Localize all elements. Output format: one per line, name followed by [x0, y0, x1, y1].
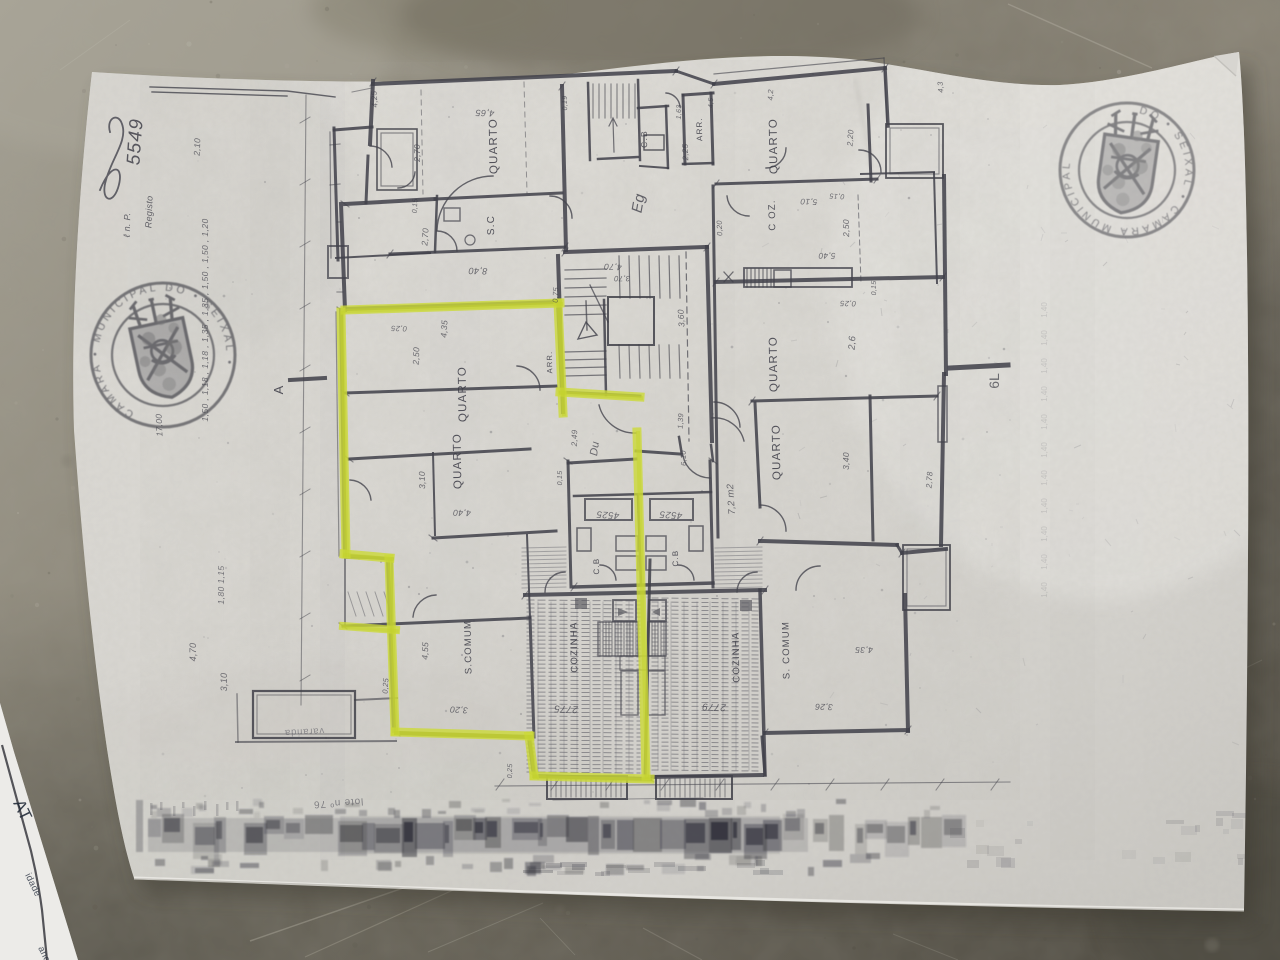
svg-text:ARR.: ARR. — [545, 351, 554, 374]
svg-text:4,40: 4,40 — [453, 508, 471, 518]
svg-text:4,35: 4,35 — [439, 320, 450, 338]
svg-text:ARR.: ARR. — [695, 117, 704, 141]
svg-text:S.COMUM: S.COMUM — [463, 620, 475, 675]
svg-text:Du: Du — [588, 440, 602, 456]
svg-text:1,40: 1,40 — [1040, 554, 1049, 570]
svg-text:0,25: 0,25 — [390, 324, 407, 334]
svg-text:COZINHA: COZINHA — [569, 621, 581, 672]
svg-text:8,40: 8,40 — [468, 266, 488, 277]
svg-text:4,70: 4,70 — [604, 262, 623, 273]
svg-text:4,65: 4,65 — [475, 108, 495, 119]
svg-text:3,70: 3,70 — [613, 274, 630, 283]
svg-text:S.C: S.C — [486, 215, 497, 235]
svg-text:4525: 4525 — [596, 508, 620, 521]
svg-text:2,49: 2,49 — [570, 429, 579, 447]
svg-text:QUARTO: QUARTO — [452, 433, 465, 489]
svg-text:C.B: C.B — [592, 557, 601, 574]
svg-text:QUARTO: QUARTO — [771, 424, 784, 480]
svg-text:4,2: 4,2 — [766, 88, 776, 100]
svg-text:4,3: 4,3 — [936, 81, 946, 93]
svg-text:C OZ.: C OZ. — [767, 199, 779, 231]
svg-text:QUARTO: QUARTO — [488, 118, 501, 174]
svg-text:2,78: 2,78 — [924, 471, 934, 490]
svg-text:1,63: 1,63 — [676, 104, 683, 119]
svg-text:1,40: 1,40 — [1040, 470, 1049, 486]
svg-text:2779: 2779 — [702, 701, 728, 713]
svg-text:1,39: 1,39 — [676, 412, 685, 429]
svg-text:0,20: 0,20 — [715, 220, 724, 237]
svg-text:0,15: 0,15 — [412, 198, 420, 213]
svg-text:1,40: 1,40 — [1040, 330, 1049, 346]
svg-text:A: A — [271, 385, 286, 394]
svg-text:1,40: 1,40 — [1040, 386, 1049, 402]
svg-text:Eɡ: Eɡ — [629, 192, 649, 214]
svg-text:4525: 4525 — [659, 508, 683, 521]
svg-text:0,15: 0,15 — [828, 191, 844, 201]
svg-text:0,25: 0,25 — [839, 299, 856, 308]
svg-text:7,2 m2: 7,2 m2 — [725, 483, 738, 515]
svg-text:0,15: 0,15 — [557, 471, 564, 486]
svg-text:1,40: 1,40 — [1040, 358, 1049, 374]
svg-text:0,15: 0,15 — [871, 281, 878, 296]
svg-text:2,25: 2,25 — [681, 143, 691, 161]
svg-text:1,40: 1,40 — [1040, 414, 1049, 430]
svg-text:5,10: 5,10 — [800, 197, 818, 207]
svg-text:0,75: 0,75 — [551, 286, 560, 303]
svg-text:5549: 5549 — [123, 117, 147, 165]
svg-text:6,10: 6,10 — [679, 450, 689, 467]
svg-text:2,50: 2,50 — [841, 219, 851, 238]
svg-text:2,50: 2,50 — [411, 347, 422, 366]
svg-text:4,35: 4,35 — [855, 645, 873, 655]
svg-text:Registo: Registo — [143, 195, 154, 228]
svg-text:2,20: 2,20 — [845, 129, 855, 148]
svg-text:S. COMUM: S. COMUM — [780, 621, 792, 679]
svg-text:6L: 6L — [986, 373, 1002, 389]
svg-text:1,40: 1,40 — [1040, 582, 1049, 598]
svg-text:C.B: C.B — [671, 549, 680, 566]
svg-text:3,60: 3,60 — [676, 309, 687, 327]
svg-text:3,10: 3,10 — [417, 471, 427, 489]
svg-text:QUARTO: QUARTO — [768, 118, 781, 174]
svg-text:4,5: 4,5 — [708, 97, 715, 108]
svg-text:2,70: 2,70 — [412, 144, 422, 163]
svg-text:1,40: 1,40 — [1040, 526, 1049, 542]
svg-text:varanda: varanda — [284, 725, 324, 738]
svg-text:C.B: C.B — [639, 130, 649, 148]
svg-text:2,6: 2,6 — [847, 335, 859, 351]
svg-text:0,19: 0,19 — [562, 96, 569, 111]
svg-text:0,25: 0,25 — [507, 763, 514, 778]
svg-text:3,26: 3,26 — [815, 702, 833, 713]
svg-text:4,25: 4,25 — [370, 90, 380, 107]
svg-text:4,55: 4,55 — [420, 642, 431, 660]
svg-text:2,70: 2,70 — [419, 228, 430, 247]
svg-text:1,40: 1,40 — [1040, 442, 1049, 458]
svg-text:3,10: 3,10 — [219, 673, 229, 692]
svg-text:4,70: 4,70 — [188, 643, 198, 662]
svg-text:1,40: 1,40 — [1040, 498, 1049, 514]
svg-text:COZINHA: COZINHA — [731, 631, 743, 682]
svg-text:QUARTO: QUARTO — [457, 366, 470, 422]
svg-text:ℓ n. P.: ℓ n. P. — [122, 212, 132, 238]
svg-text:3,40: 3,40 — [841, 452, 851, 470]
svg-text:3,20: 3,20 — [450, 705, 469, 716]
svg-text:2,10: 2,10 — [192, 138, 203, 157]
svg-text:QUARTO: QUARTO — [768, 336, 781, 392]
svg-text:1,40: 1,40 — [1040, 302, 1049, 318]
svg-text:2775: 2775 — [554, 703, 580, 715]
svg-text:1,80 1,15: 1,80 1,15 — [216, 565, 226, 604]
svg-text:0,25: 0,25 — [381, 677, 391, 694]
